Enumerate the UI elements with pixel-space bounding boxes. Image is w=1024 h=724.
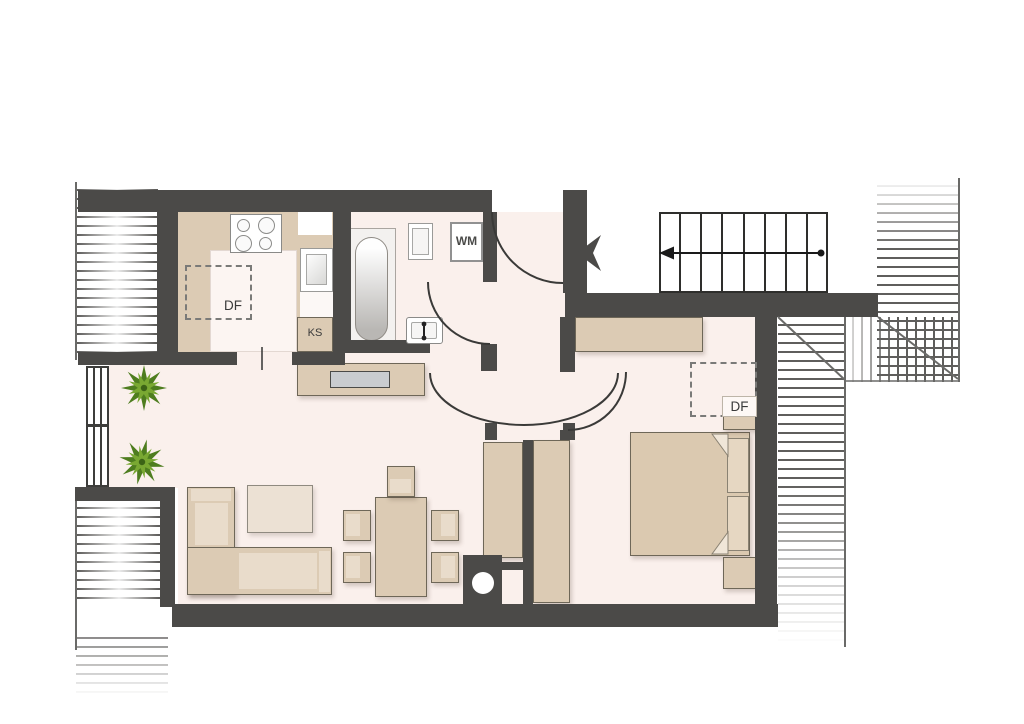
- wall-bath-east: [483, 212, 497, 282]
- wall-bath-east-stub: [481, 344, 497, 371]
- wall-kitchen-south-left: [178, 352, 237, 365]
- dining-chair: [343, 552, 371, 583]
- stove-icon: [230, 214, 282, 253]
- roof-hatch-bottom-left: [76, 500, 162, 604]
- hall-cabinet-right: [533, 440, 570, 603]
- washing-machine-label: WM: [450, 235, 483, 247]
- roof-edge-left-bottom: [75, 500, 77, 650]
- floor-plan: KS DF WM DF: [0, 0, 1024, 724]
- roof-hatch-right-hip: [845, 317, 958, 382]
- chair-seat: [346, 556, 360, 578]
- chimney-flue-icon: [472, 572, 494, 594]
- fridge-label: KS: [301, 328, 329, 339]
- toilet-bowl: [411, 322, 437, 339]
- wall-top-right: [563, 190, 587, 212]
- wall-kitchen-west: [157, 212, 178, 352]
- pillow: [727, 438, 749, 493]
- bathtub-icon: [349, 228, 396, 352]
- burner-icon: [259, 237, 272, 250]
- chair-seat: [441, 514, 455, 536]
- dining-chair: [431, 552, 459, 583]
- wall-entry-side: [563, 212, 587, 293]
- tv-icon: [330, 371, 390, 388]
- bath-sink-basin: [412, 228, 429, 255]
- chair-seat: [441, 556, 455, 578]
- dining-chair: [343, 510, 371, 541]
- wall-kitchen-south-right: [292, 352, 345, 365]
- coffee-table: [247, 485, 313, 533]
- roof-edge-left-top: [75, 182, 77, 360]
- window-icon: [86, 366, 109, 487]
- kitchen-skylight-label: DF: [216, 299, 250, 313]
- wall-bottom: [172, 604, 778, 627]
- kitchen-wall-niche: [298, 212, 332, 235]
- sink-basin: [306, 254, 327, 285]
- burner-icon: [237, 219, 250, 232]
- chair-seat: [346, 514, 360, 536]
- wall-under-stairs: [565, 293, 878, 317]
- dining-chair: [387, 466, 415, 497]
- roof-edge-right: [958, 178, 960, 382]
- staircase: [659, 212, 828, 293]
- dining-chair: [431, 510, 459, 541]
- sofa-cushion: [191, 489, 231, 501]
- roof-hatch-right-side: [778, 317, 845, 650]
- chimney-stub: [502, 562, 533, 570]
- kitchen-counter-gap: [300, 292, 333, 317]
- chair-seat: [390, 479, 411, 493]
- nightstand: [723, 557, 757, 589]
- sofa-cushion: [239, 553, 317, 589]
- wardrobe: [575, 317, 703, 352]
- wall-living-west: [160, 487, 175, 607]
- wall-bedroom-west-stub: [560, 430, 575, 440]
- wall-hall-stub-left: [485, 423, 497, 440]
- wall-west-upper: [78, 352, 178, 365]
- wall-kitchen-bath-divider: [333, 212, 351, 343]
- wall-bedroom-west-upper: [560, 317, 575, 372]
- pillow: [727, 496, 749, 551]
- hall-cabinet-left: [483, 442, 523, 558]
- wall-bedroom-east: [755, 317, 777, 604]
- wall-living-bedroom-divider: [523, 440, 533, 604]
- window-mullion: [88, 424, 107, 427]
- floor-window-bay: [109, 365, 180, 488]
- roof-edge-inner: [844, 317, 846, 647]
- bathtub-basin: [355, 237, 388, 341]
- bedroom-skylight-label: DF: [722, 400, 757, 414]
- sofa-cushion: [319, 551, 330, 592]
- bath-sink-icon: [408, 223, 433, 260]
- sofa-cushion: [195, 503, 228, 545]
- kitchen-sink-icon: [300, 248, 333, 292]
- burner-icon: [258, 217, 275, 234]
- dining-table: [375, 497, 427, 597]
- burner-icon: [235, 235, 252, 252]
- wall-top: [78, 190, 492, 212]
- toilet-icon: [406, 317, 443, 344]
- roof-hatch-bottom-left-outer: [76, 630, 168, 700]
